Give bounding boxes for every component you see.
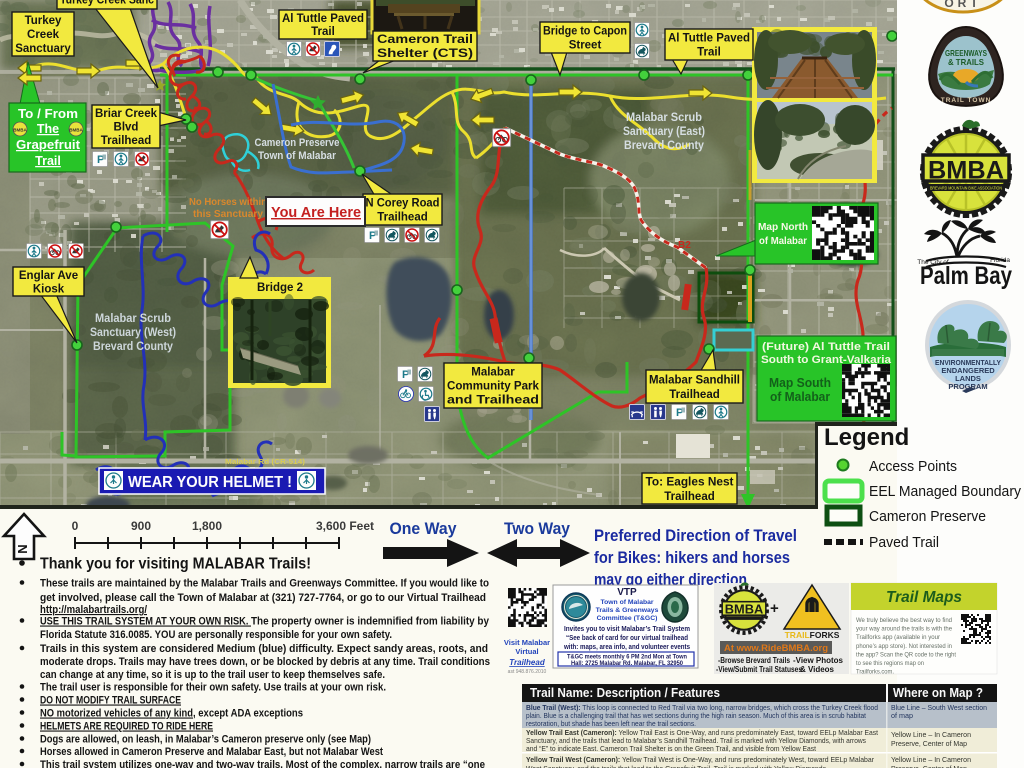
svg-text:Trailhead: Trailhead [664, 491, 715, 503]
svg-text:Hall: 2725 Malabar Rd. Malabar: Hall: 2725 Malabar Rd. Malabar, FL 32950 [571, 661, 684, 667]
svg-text:Trail: Trail [35, 154, 61, 168]
svg-text:Trails in this system are cons: Trails in this system are considered Med… [40, 643, 488, 655]
svg-text:T&GC meets monthly 6 PM 2nd Mo: T&GC meets monthly 6 PM 2nd Mon at Town [567, 655, 687, 661]
svg-text:Preserve, Center of Map: Preserve, Center of Map [891, 764, 967, 768]
svg-text:BMBA: BMBA [69, 128, 83, 133]
svg-text:& Videos: & Videos [800, 665, 835, 674]
svg-text:Map North: Map North [758, 221, 808, 233]
svg-text:Thank you for visiting MALABAR: Thank you for visiting MALABAR Trails! [40, 556, 311, 573]
svg-text:To / From: To / From [18, 107, 78, 121]
svg-text:Trailhead: Trailhead [377, 212, 428, 224]
svg-text:Preferred Direction of Travel: Preferred Direction of Travel [594, 527, 797, 545]
svg-text:-View Photos: -View Photos [793, 656, 844, 665]
svg-text:EEL Managed Boundary: EEL Managed Boundary [869, 483, 1021, 500]
svg-text:TRAIL TOWN: TRAIL TOWN [941, 97, 992, 104]
svg-text:We truly believe the best way: We truly believe the best way to find [856, 617, 952, 624]
svg-text:Yellow Line – In Cameron: Yellow Line – In Cameron [891, 755, 971, 764]
svg-text:Brevard County: Brevard County [624, 140, 705, 152]
svg-text:0: 0 [72, 519, 79, 533]
svg-text:Map South: Map South [769, 376, 831, 390]
svg-text:Al Tuttle Paved: Al Tuttle Paved [282, 13, 364, 25]
svg-text:Community Park: Community Park [447, 381, 540, 393]
svg-text:with: maps, area info, and vol: with: maps, area info, and volunteer eve… [563, 642, 690, 651]
svg-text:3,600 Feet: 3,600 Feet [316, 519, 374, 533]
svg-text:can change at any time, so it: can change at any time, so it is up to t… [40, 669, 385, 681]
svg-text:-Browse Brevard Trails: -Browse Brevard Trails [718, 656, 791, 665]
svg-text:& TRAILS: & TRAILS [948, 57, 984, 67]
svg-text:Legend: Legend [824, 424, 909, 451]
svg-text:Visit Malabar: Visit Malabar [504, 638, 550, 647]
svg-text:Brevard County: Brevard County [93, 341, 174, 353]
svg-text:BMBA: BMBA [725, 602, 764, 617]
svg-text:Town of Malabar: Town of Malabar [258, 150, 337, 162]
svg-text:DO NOT MODIFY TRAIL SURFACE: DO NOT MODIFY TRAIL SURFACE [40, 695, 181, 707]
svg-text:Florida Statute 316.0085. YOU: Florida Statute 316.0085. YOU are person… [40, 629, 392, 641]
svg-text:Where on Map ?: Where on Map ? [893, 686, 983, 700]
svg-text:Kiosk: Kiosk [33, 283, 65, 295]
svg-text:BMBA: BMBA [13, 128, 27, 133]
svg-text:Virtual: Virtual [515, 647, 538, 656]
svg-text:Trail Name: Description / Feat: Trail Name: Description / Features [530, 686, 720, 700]
svg-text:One Way: One Way [390, 520, 458, 538]
svg-text:VTP: VTP [617, 587, 637, 598]
svg-text:Malabar Scrub: Malabar Scrub [626, 112, 702, 124]
svg-text:and “E” to indicate East. Cam: and “E” to indicate East. Cameron Trail … [526, 744, 816, 753]
svg-text:Briar Creek: Briar Creek [95, 108, 158, 120]
svg-text:Trailforks.com.: Trailforks.com. [856, 669, 894, 676]
svg-text:Paved Trail: Paved Trail [869, 534, 939, 551]
svg-text:of Malabar: of Malabar [759, 235, 807, 247]
svg-text:Trailhead: Trailhead [509, 658, 546, 667]
svg-text:At www.RideBMBA.org: At www.RideBMBA.org [724, 643, 828, 654]
svg-text:ast 948.876.2010: ast 948.876.2010 [508, 669, 547, 675]
svg-text:HELMETS ARE REQUIRED TO RIDE H: HELMETS ARE REQUIRED TO RIDE HERE [40, 721, 213, 733]
svg-text:get involved, please call the: get involved, please call the Town of Ma… [40, 592, 486, 604]
svg-text:“See back of card for our virt: “See back of card for our virtual trailh… [566, 633, 688, 642]
svg-text:The: The [37, 122, 59, 136]
svg-text:Trailhead: Trailhead [101, 135, 152, 147]
svg-text:Horses allowed in Cameron Pres: Horses allowed in Cameron Preserve and M… [40, 746, 383, 758]
svg-text:Creek: Creek [27, 29, 60, 41]
svg-text:Cameron Preserve: Cameron Preserve [869, 508, 986, 525]
svg-text:Cameron Preserve: Cameron Preserve [255, 137, 340, 149]
svg-text:Bridge 2: Bridge 2 [257, 282, 303, 294]
svg-text:Yellow Line – In Cameron: Yellow Line – In Cameron [891, 730, 971, 739]
svg-text:N Corey Road: N Corey Road [366, 198, 440, 210]
svg-text:Turkey Creek Sanc: Turkey Creek Sanc [60, 0, 155, 7]
svg-text:Trail: Trail [311, 26, 335, 38]
svg-text:http://malabartrails.org/: http://malabartrails.org/ [40, 604, 147, 616]
svg-text:NO motorized vehicles of any k: NO motorized vehicles of any kind, excep… [40, 708, 303, 720]
svg-text:Two Way: Two Way [504, 520, 571, 538]
svg-text:BMBA: BMBA [928, 157, 1004, 185]
svg-text:Sanctuary (West): Sanctuary (West) [90, 327, 176, 339]
svg-text:-View/Submit Trail Statuses: -View/Submit Trail Statuses [716, 665, 803, 674]
svg-text:You Are Here: You Are Here [271, 205, 361, 221]
svg-text:Trailforks app (available in y: Trailforks app (available in your [856, 634, 941, 641]
svg-text:The trail user is responsible: The trail user is responsible for their … [40, 682, 386, 694]
svg-text:WEAR YOUR HELMET !: WEAR YOUR HELMET ! [128, 474, 292, 491]
svg-text:Blvd: Blvd [114, 122, 139, 134]
svg-text:Preserve, Center of Map: Preserve, Center of Map [891, 739, 967, 748]
svg-text:Access Points: Access Points [869, 458, 957, 475]
svg-text:West Sanctuary, and the trails: West Sanctuary, and the trails that lead… [526, 764, 826, 768]
svg-text:+: + [770, 600, 779, 617]
svg-text:Malabar: Malabar [471, 367, 515, 379]
svg-text:Trails & Greenways: Trails & Greenways [596, 607, 659, 614]
svg-text:of Malabar: of Malabar [770, 390, 830, 404]
svg-text:Grapefruit: Grapefruit [16, 138, 81, 152]
svg-text:Street: Street [569, 40, 602, 52]
svg-text:Palm Bay: Palm Bay [920, 262, 1012, 290]
svg-text:These trails are maintained by: These trails are maintained by the Malab… [40, 578, 489, 590]
svg-text:BREVARD MOUNTAIN BIKE ASSOCIAT: BREVARD MOUNTAIN BIKE ASSOCIATION [930, 186, 1002, 191]
svg-text:Cameron Trail: Cameron Trail [377, 34, 473, 46]
svg-text:Trail: Trail [697, 47, 721, 59]
svg-text:Town of Malabar: Town of Malabar [600, 599, 653, 606]
svg-text:to see this regions map on: to see this regions map on [856, 660, 924, 667]
svg-text:Trail Maps: Trail Maps [886, 589, 962, 606]
svg-text:To: Eagles Nest: To: Eagles Nest [646, 476, 734, 488]
svg-text:Turkey: Turkey [25, 15, 62, 27]
svg-text:Sanctuary: Sanctuary [15, 43, 71, 55]
svg-text:Yellow Trail West (Cameron):: Yellow Trail West (Cameron): Yellow Trai… [526, 755, 875, 764]
svg-text:USE THIS TRAIL SYSTEM AT YOUR: USE THIS TRAIL SYSTEM AT YOUR OWN RISK. … [40, 616, 490, 628]
svg-text:N: N [15, 544, 30, 553]
svg-text:TRAILFORKS: TRAILFORKS [785, 630, 840, 640]
svg-text:Invites you to visit Malabar’s: Invites you to visit Malabar’s Trail Sys… [564, 624, 690, 633]
svg-text:Bridge to Capon: Bridge to Capon [543, 26, 627, 38]
svg-text:B2: B2 [678, 240, 691, 251]
svg-text:Malabar Sandhill: Malabar Sandhill [649, 374, 740, 386]
svg-text:Al Tuttle Paved: Al Tuttle Paved [668, 33, 750, 45]
svg-text:ORT: ORT [944, 0, 981, 10]
svg-text:your way around the trails is: your way around the trails is with the [856, 626, 952, 633]
svg-text:Committee (T&GC): Committee (T&GC) [597, 615, 658, 622]
svg-text:900: 900 [131, 519, 151, 533]
svg-text:1,800: 1,800 [192, 519, 222, 533]
svg-text:Shelter (CTS): Shelter (CTS) [377, 48, 473, 60]
svg-text:This trail system utilizes one: This trail system utilizes one-way and t… [40, 759, 485, 768]
svg-text:Malabar Scrub: Malabar Scrub [95, 313, 171, 325]
svg-text:this Sanctuary: this Sanctuary [193, 208, 263, 220]
svg-text:Malabar Rd (CR-514): Malabar Rd (CR-514) [225, 457, 306, 466]
svg-text:restoration, but shade has bee: restoration, but shade has been left nea… [526, 719, 696, 728]
svg-text:Englar Ave: Englar Ave [19, 270, 78, 282]
svg-text:No Horses within: No Horses within [189, 196, 267, 208]
svg-text:moderate drops. Trails may ha: moderate drops. Trails may have trees do… [40, 656, 490, 668]
svg-text:Sanctuary (East): Sanctuary (East) [623, 126, 705, 138]
svg-text:and Trailhead: and Trailhead [447, 395, 539, 407]
svg-text:of map: of map [891, 711, 913, 720]
svg-text:Trailhead: Trailhead [669, 389, 720, 401]
svg-text:phone’s app store). Not intere: phone’s app store). Not interested in [856, 643, 952, 650]
svg-text:the app? Scan the QR code to: the app? Scan the QR code to the right [856, 651, 956, 658]
svg-text:Dogs are allowed, on leash, in: Dogs are allowed, on leash, in Malabar’s… [40, 734, 371, 746]
svg-text:(Future) Al Tuttle Trail: (Future) Al Tuttle Trail [762, 341, 890, 353]
svg-text:for Bikes: hikers and horses: for Bikes: hikers and horses [594, 549, 790, 567]
